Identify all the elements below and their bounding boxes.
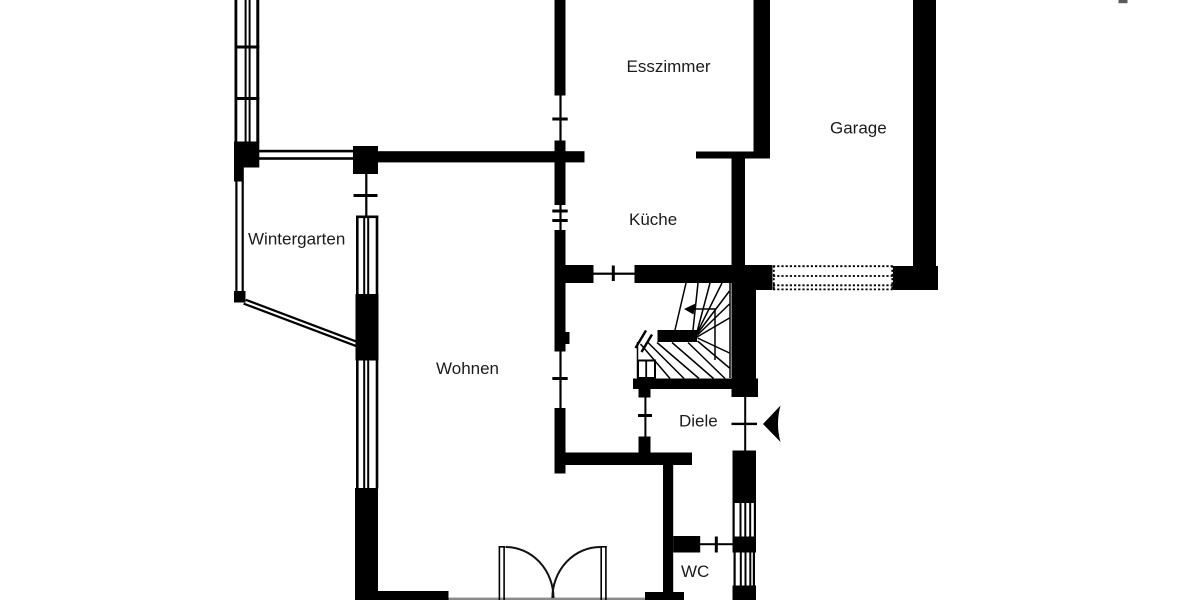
svg-text:Esszimmer: Esszimmer bbox=[627, 57, 711, 76]
svg-text:Wohnen: Wohnen bbox=[436, 359, 499, 378]
svg-text:Küche: Küche bbox=[629, 210, 677, 229]
svg-text:Diele: Diele bbox=[679, 412, 718, 431]
svg-text:Garage: Garage bbox=[830, 119, 887, 138]
svg-text:Wintergarten: Wintergarten bbox=[248, 230, 345, 249]
svg-text:WC: WC bbox=[681, 562, 709, 581]
